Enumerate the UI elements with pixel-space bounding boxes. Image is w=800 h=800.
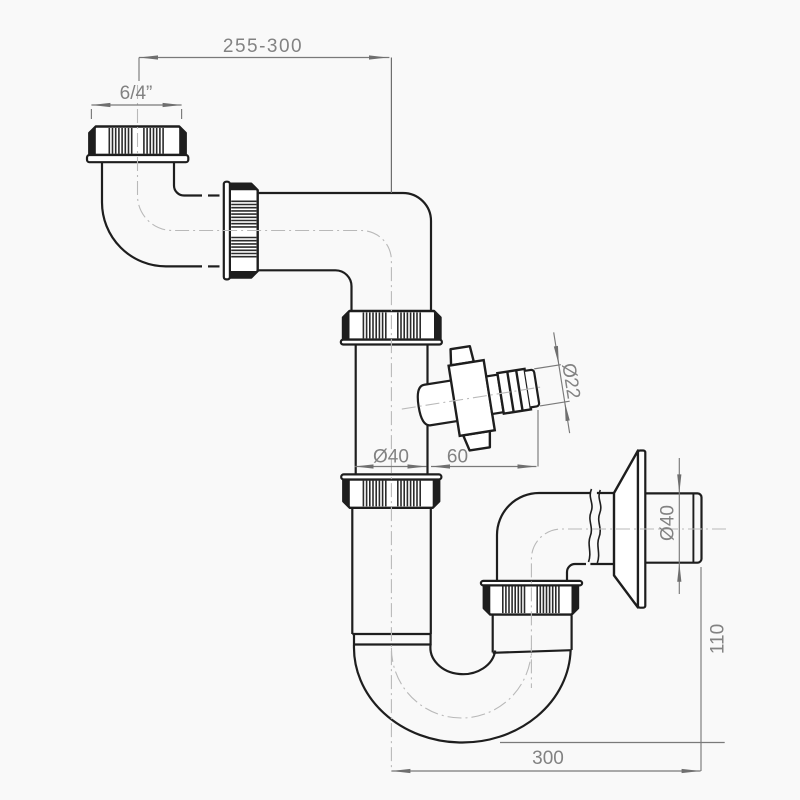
svg-text:60: 60 — [447, 447, 468, 468]
svg-text:300: 300 — [532, 748, 564, 769]
svg-text:255-300: 255-300 — [223, 36, 303, 57]
svg-text:110: 110 — [708, 624, 729, 654]
svg-text:Ø40: Ø40 — [373, 447, 409, 468]
svg-text:Ø40: Ø40 — [658, 505, 679, 541]
svg-text:6/4”: 6/4” — [120, 83, 153, 104]
